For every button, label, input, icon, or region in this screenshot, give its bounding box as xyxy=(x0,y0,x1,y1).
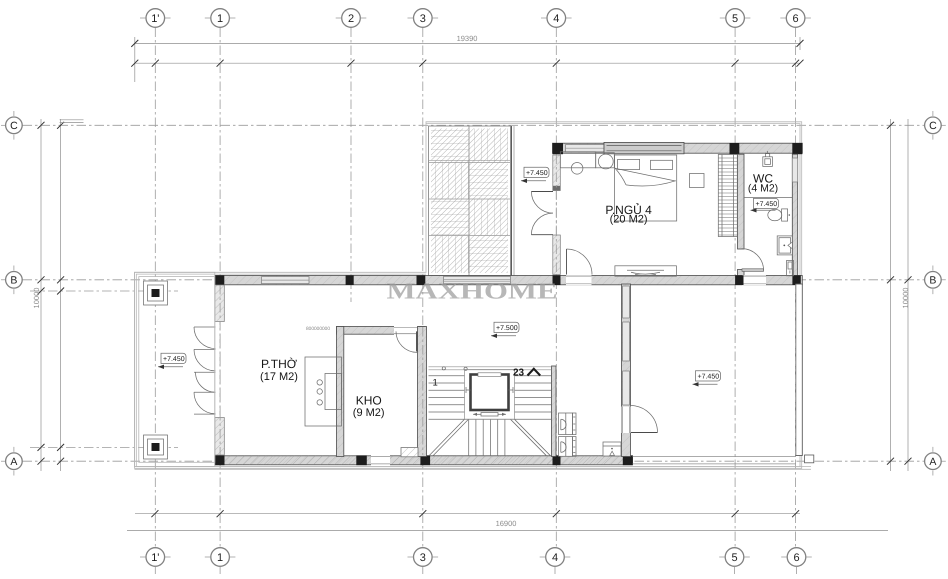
svg-text:6: 6 xyxy=(793,13,799,25)
svg-text:+7.500: +7.500 xyxy=(496,325,518,332)
svg-text:B: B xyxy=(929,275,936,287)
svg-text:3: 3 xyxy=(420,552,426,564)
svg-text:C: C xyxy=(929,120,937,132)
svg-text:A: A xyxy=(10,456,17,468)
svg-text:(4 M2): (4 M2) xyxy=(748,183,778,195)
svg-text:+7.450: +7.450 xyxy=(526,170,548,177)
svg-text:+7.450: +7.450 xyxy=(163,356,185,363)
svg-text:6: 6 xyxy=(793,552,799,564)
svg-text:23: 23 xyxy=(513,368,525,379)
svg-text:2: 2 xyxy=(348,13,354,25)
svg-text:1: 1 xyxy=(433,378,438,389)
svg-text:1': 1' xyxy=(151,552,159,564)
svg-text:MAXHOME: MAXHOME xyxy=(387,279,558,304)
svg-text:10000: 10000 xyxy=(32,288,41,309)
svg-text:5: 5 xyxy=(731,552,737,564)
svg-text:A: A xyxy=(929,456,936,468)
svg-text:4: 4 xyxy=(552,552,558,564)
svg-text:+7.450: +7.450 xyxy=(756,201,778,208)
svg-text:(20 M2): (20 M2) xyxy=(610,214,648,226)
svg-text:5: 5 xyxy=(732,13,738,25)
svg-text:P.THỜ: P.THỜ xyxy=(261,357,298,371)
svg-text:800000000: 800000000 xyxy=(306,326,330,332)
svg-text:(17 M2): (17 M2) xyxy=(260,371,298,383)
svg-text:C: C xyxy=(10,120,18,132)
svg-text:3: 3 xyxy=(420,13,426,25)
svg-text:(9 M2): (9 M2) xyxy=(353,407,385,419)
svg-text:1: 1 xyxy=(217,552,223,564)
svg-text:19390: 19390 xyxy=(457,34,478,43)
svg-text:1': 1' xyxy=(151,13,159,25)
svg-text:+7.450: +7.450 xyxy=(698,373,720,380)
svg-text:B: B xyxy=(10,275,17,287)
svg-text:KHO: KHO xyxy=(356,394,382,408)
svg-text:1: 1 xyxy=(217,13,223,25)
svg-text:4: 4 xyxy=(553,13,559,25)
svg-text:16900: 16900 xyxy=(496,519,517,528)
svg-text:10000: 10000 xyxy=(901,288,910,309)
